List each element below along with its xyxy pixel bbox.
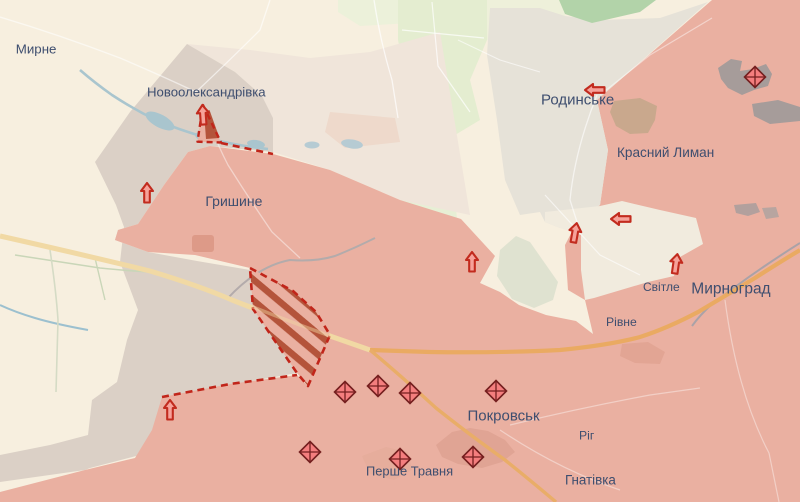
svg-text:Гришине: Гришине xyxy=(205,193,262,209)
svg-text:Новоолександрівка: Новоолександрівка xyxy=(147,85,266,100)
svg-text:Родинське: Родинське xyxy=(541,92,614,109)
svg-text:Мирноград: Мирноград xyxy=(691,281,770,298)
svg-text:Гнатівка: Гнатівка xyxy=(565,473,616,488)
svg-text:Мирне: Мирне xyxy=(16,42,57,57)
svg-text:Перше Травня: Перше Травня xyxy=(366,464,453,479)
svg-text:Покровськ: Покровськ xyxy=(468,408,540,425)
svg-text:Світле: Світле xyxy=(643,280,680,294)
svg-text:Рівне: Рівне xyxy=(606,315,637,329)
svg-text:Красний Лиман: Красний Лиман xyxy=(617,145,714,160)
svg-text:Ріг: Ріг xyxy=(579,429,595,443)
